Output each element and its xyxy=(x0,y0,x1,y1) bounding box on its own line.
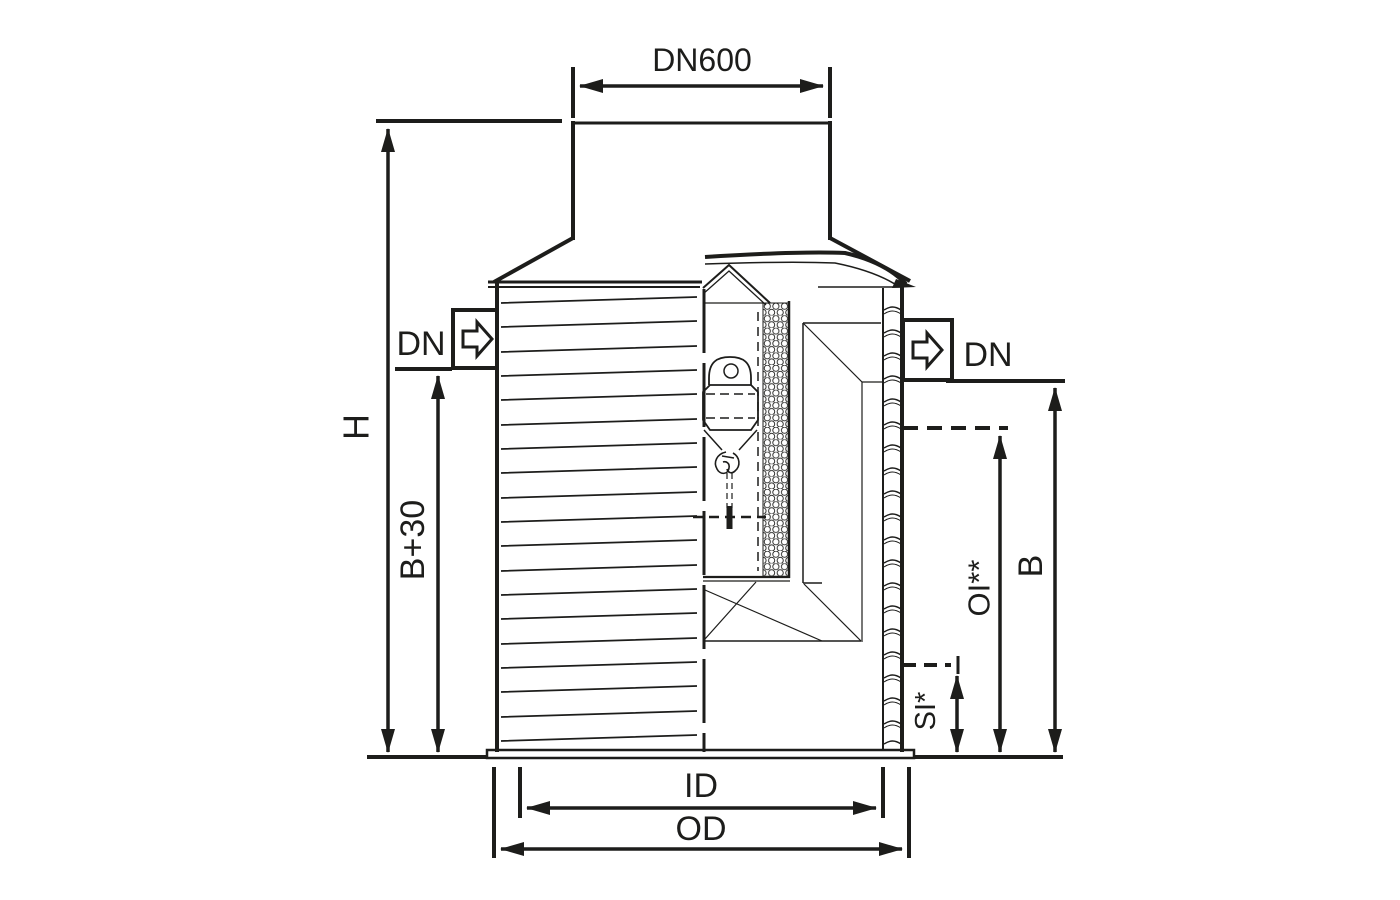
label-b: B xyxy=(1012,555,1050,578)
outlet-chamber xyxy=(803,323,883,642)
separator-cross-section-drawing: DN600 DN DN H B+30 OI** B SI* ID OD xyxy=(0,0,1400,900)
label-od: OD xyxy=(676,810,727,848)
corrugation-hatch xyxy=(501,297,697,741)
inlet-deflector xyxy=(703,265,770,305)
technical-drawing-canvas: DN600 DN DN H B+30 OI** B SI* ID OD xyxy=(0,0,1400,900)
tank-shell-left xyxy=(497,282,697,752)
dim-height-h xyxy=(367,121,562,757)
corrugated-wall xyxy=(883,285,902,752)
inlet-flow-arrow-icon xyxy=(453,310,497,368)
base-plate xyxy=(487,750,914,758)
tank-body xyxy=(487,121,916,758)
label-dn-outlet: DN xyxy=(963,336,1012,374)
label-dn600: DN600 xyxy=(652,42,752,78)
sludge-hopper xyxy=(703,577,861,641)
label-dn-inlet: DN xyxy=(396,325,445,363)
label-b30: B+30 xyxy=(394,500,432,580)
label-h: H xyxy=(336,414,377,440)
riser-neck xyxy=(571,121,832,240)
float-hook xyxy=(715,452,738,473)
coalescer-filter xyxy=(758,301,789,578)
label-oi: OI** xyxy=(962,560,997,617)
outlet-flow-arrow-icon xyxy=(903,320,952,380)
label-si: SI* xyxy=(910,692,942,731)
cone-lid xyxy=(488,238,916,288)
label-id: ID xyxy=(684,767,718,805)
